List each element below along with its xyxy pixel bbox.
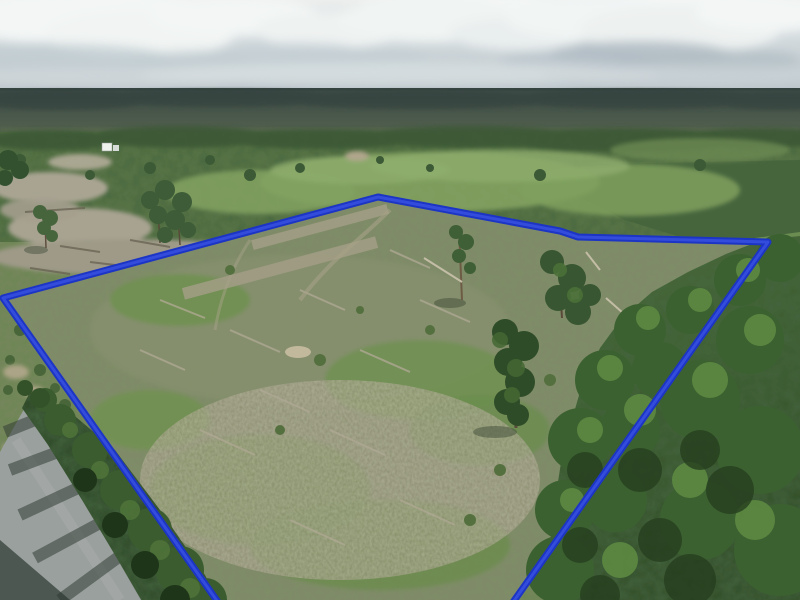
sandy-spot (285, 346, 311, 358)
aerial-photo-canvas (0, 0, 800, 600)
slash-debris-field (140, 380, 540, 580)
aerial-photo (0, 0, 800, 600)
